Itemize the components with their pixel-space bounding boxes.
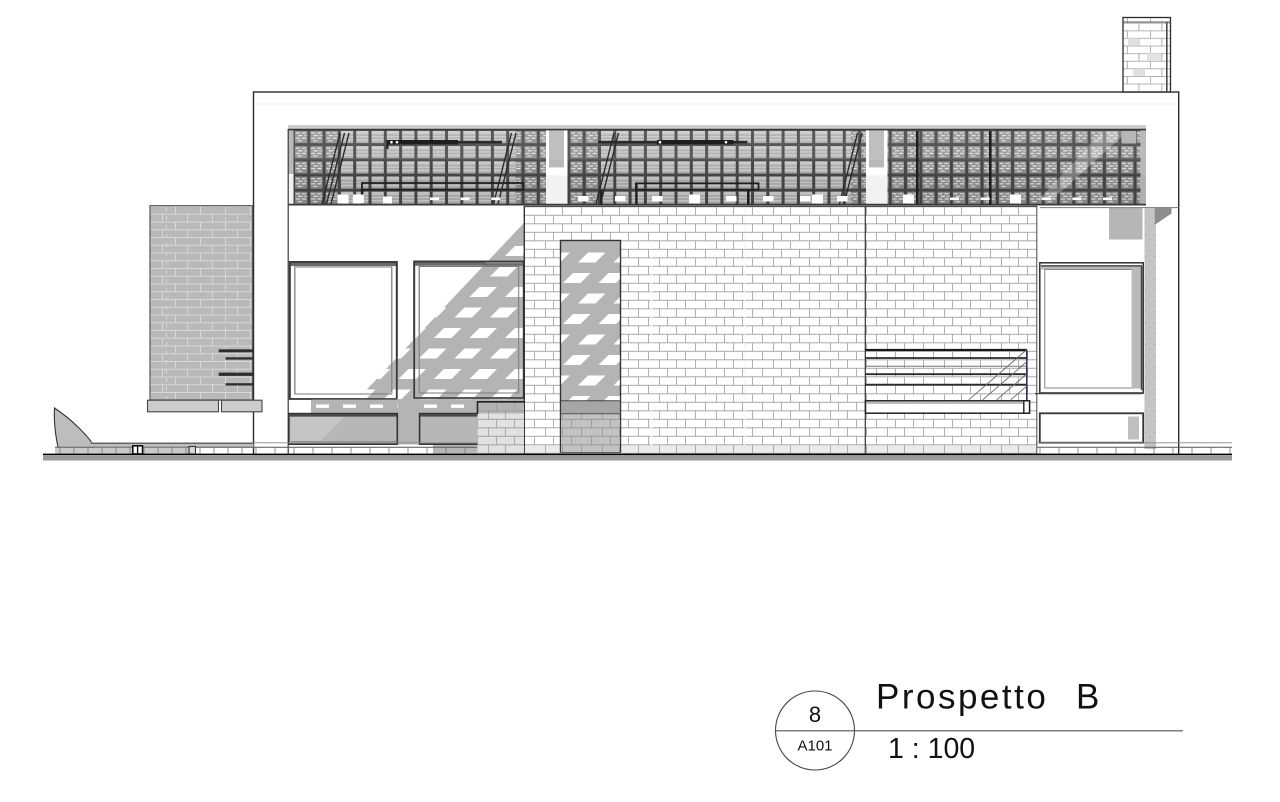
svg-text:A101: A101 (797, 738, 832, 755)
svg-text:B: B (1076, 678, 1099, 717)
svg-text:Prospetto: Prospetto (876, 678, 1048, 717)
svg-text:1 : 100: 1 : 100 (888, 733, 975, 765)
svg-text:8: 8 (809, 702, 821, 727)
